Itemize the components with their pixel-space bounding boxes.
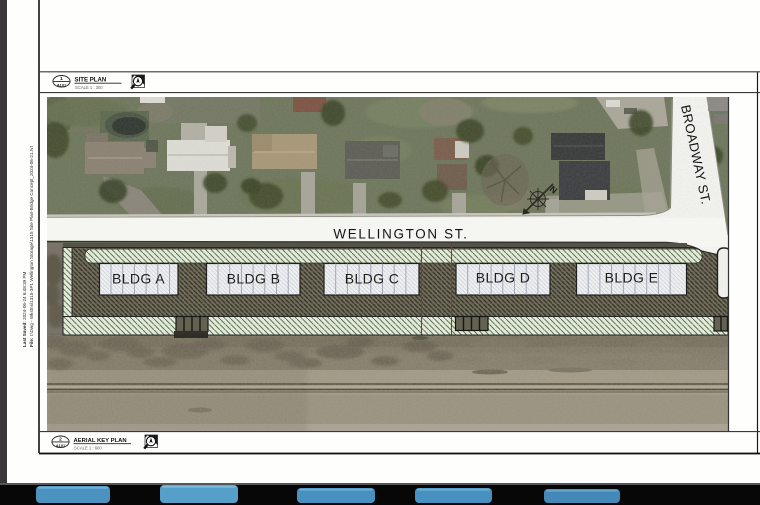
svg-text:Last Saved: 2024-06-24 6:48:3: Last Saved: 2024-06-24 6:48:39 PM [22,271,27,347]
svg-text:SCALE 1 : 600: SCALE 1 : 600 [74,445,102,450]
svg-text:File: I:\Dwg - Wkstns\1315-3P: File: I:\Dwg - Wkstns\1315-3P1 Wellingto… [29,145,34,347]
svg-text:A101: A101 [57,82,67,87]
svg-text:AERIAL KEY PLAN: AERIAL KEY PLAN [74,438,127,444]
svg-text:A101: A101 [56,443,66,448]
svg-text:1: 1 [60,76,63,82]
svg-text:SCALE 1 : 300: SCALE 1 : 300 [75,85,103,90]
svg-text:WELLINGTON ST.: WELLINGTON ST. [333,227,468,242]
svg-text:2: 2 [59,437,62,443]
svg-text:SITE PLAN: SITE PLAN [75,77,107,84]
